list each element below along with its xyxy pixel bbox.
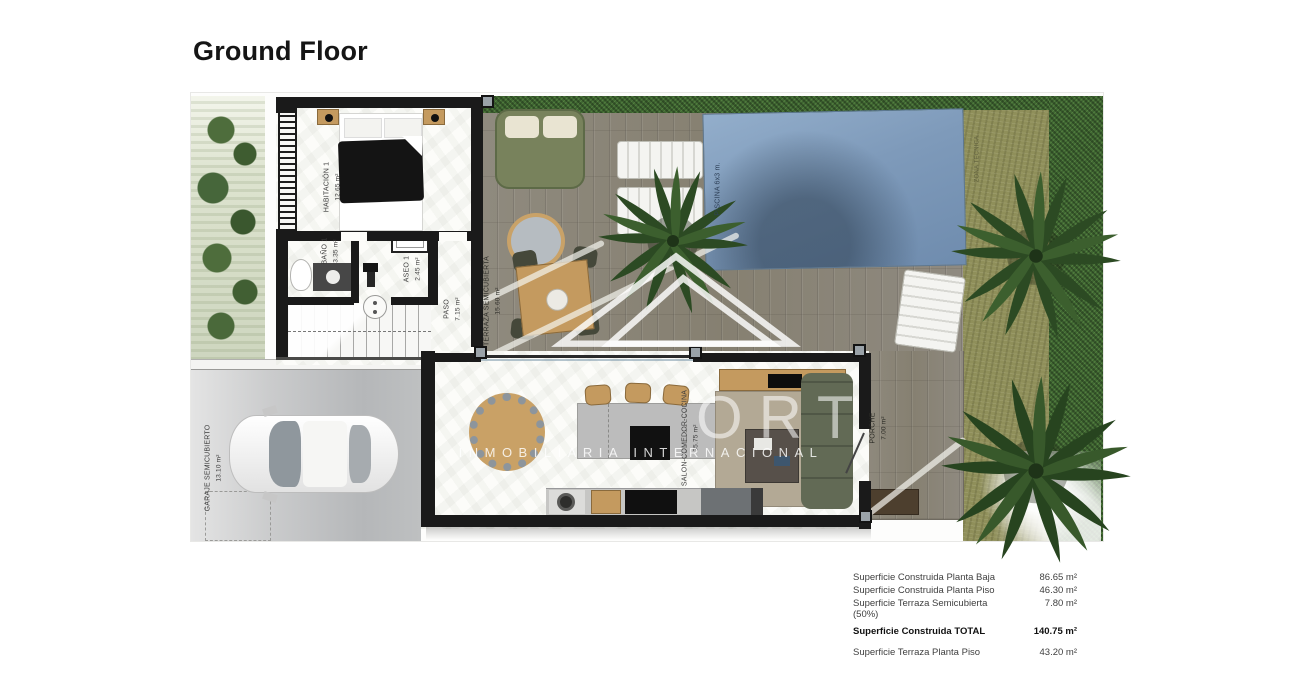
table-centerpiece: [545, 288, 569, 312]
wall: [421, 515, 871, 527]
outdoor-sofa: [495, 109, 585, 189]
faucet-icon: [373, 301, 377, 305]
toilet: [290, 259, 312, 291]
shower: [313, 263, 353, 291]
duvet-fold: [402, 136, 422, 156]
row-value: 140.75 m²: [1015, 626, 1077, 637]
pillar: [853, 344, 866, 357]
row-label: Superficie Construida Planta Baja: [853, 572, 995, 583]
row-value: 7.80 m²: [1015, 598, 1077, 620]
wall: [288, 297, 354, 305]
pool-label: PISCINA 6x3 m.: [714, 162, 725, 215]
bed: [339, 113, 423, 231]
magazine: [754, 438, 772, 450]
cooktop: [625, 490, 677, 514]
sofa: [801, 373, 853, 509]
wall-shadow: [426, 527, 871, 540]
sofa-cushion: [505, 116, 539, 138]
toilet-bowl: [367, 272, 375, 287]
round-pouf-table: [469, 393, 545, 471]
sun-lounger: [894, 269, 966, 353]
wall: [276, 241, 288, 359]
dining-chair: [584, 384, 611, 406]
pillar: [859, 510, 872, 523]
room-label-paso: PASO7.15 m²: [443, 297, 464, 320]
palm-tree-icon: [951, 171, 1121, 341]
row-label: Superficie Construida TOTAL: [853, 626, 985, 637]
pillar: [689, 346, 702, 359]
room-label-habitacion: HABITACIÓN 112.65 m²: [323, 162, 344, 213]
row-value: 86.65 m²: [1015, 572, 1077, 583]
washing-machine: [549, 490, 585, 514]
fridge-unit: [701, 488, 753, 515]
car-windshield: [269, 421, 301, 487]
wall: [276, 97, 483, 108]
room-label-garaje: GARAJE SEMICUBIERTO13.10 m²: [204, 425, 225, 512]
car-roof: [303, 421, 347, 487]
staircase: [288, 304, 431, 357]
floor-plan: HABITACIÓN 112.65 m² BAÑO 13.35 m² ASEO …: [190, 92, 1104, 542]
surface-summary-table: Superficie Construida Planta Baja 86.65 …: [853, 572, 1077, 660]
table-row-total: Superficie Construida TOTAL 140.75 m²: [853, 626, 1077, 637]
toilet-tank: [363, 263, 378, 272]
room-label-terraza: TERRAZA SEMICUBIERTA15.60 m²: [483, 256, 504, 346]
row-label: Superficie Terraza Planta Piso: [853, 647, 980, 658]
pillar: [481, 95, 494, 108]
stair-walkline: [288, 331, 431, 332]
pillar: [474, 346, 487, 359]
page-title: Ground Floor: [193, 36, 368, 67]
lamp-icon: [325, 114, 333, 122]
table-inset: [630, 426, 670, 460]
end-panel: [751, 488, 763, 515]
room-label-salon: SALON-COMEDOR-COCINA35.75 m²: [681, 390, 702, 486]
door-opening: [439, 232, 467, 241]
shower-drain: [326, 270, 340, 284]
wall: [391, 297, 438, 305]
car: [229, 409, 399, 499]
wall: [428, 233, 438, 303]
row-label: Superficie Construida Planta Piso: [853, 585, 995, 596]
washer-door-icon: [557, 493, 575, 511]
sofa-cushion: [543, 116, 577, 138]
room-label-aseo: ASEO 12.45 m²: [403, 256, 424, 283]
wall: [276, 97, 297, 113]
window-shutter: [278, 111, 297, 231]
drain-icon: [373, 310, 377, 314]
tv-screen: [768, 374, 802, 388]
table-seam: [608, 404, 609, 458]
pillow: [384, 118, 422, 138]
garden-zone-label: ZONA TECNICA: [973, 136, 982, 183]
wall: [351, 241, 359, 303]
row-value: 46.30 m²: [1015, 585, 1077, 596]
row-value: 43.20 m²: [1015, 647, 1077, 658]
lamp-icon: [431, 114, 439, 122]
palm-tree-icon: [598, 166, 748, 316]
nightstand: [317, 109, 339, 125]
pillow: [344, 118, 382, 138]
nightstand: [423, 109, 445, 125]
wall: [693, 353, 865, 362]
room-label-porche: PORCHE7.00 m²: [869, 412, 890, 443]
left-garden-strip: [191, 96, 265, 360]
coffee-table: [745, 429, 799, 483]
room-label-bano: BAÑO 13.35 m²: [321, 238, 342, 265]
wall: [421, 351, 435, 527]
table-row: Superficie Construida Planta Piso 46.30 …: [853, 585, 1077, 596]
kitchen-cabinet: [591, 490, 621, 514]
glass-track: [481, 359, 693, 361]
washbasin: [363, 295, 387, 319]
palm-tree-icon: [941, 376, 1131, 566]
door-opening: [341, 232, 367, 241]
magazine: [774, 456, 790, 466]
dining-chair: [625, 383, 652, 404]
wall: [471, 97, 483, 241]
car-rear-window: [349, 425, 371, 483]
wall: [276, 357, 428, 360]
sliding-glass-door: [481, 355, 693, 358]
tray-inner: [396, 240, 424, 248]
table-row: Superficie Terraza Semicubierta (50%) 7.…: [853, 598, 1077, 620]
floor-plan-page: Ground Floor: [0, 0, 1290, 698]
table-row: Superficie Terraza Planta Piso 43.20 m²: [853, 647, 1077, 658]
row-label: Superficie Terraza Semicubierta (50%): [853, 598, 1015, 620]
table-row: Superficie Construida Planta Baja 86.65 …: [853, 572, 1077, 583]
wall: [471, 241, 483, 347]
